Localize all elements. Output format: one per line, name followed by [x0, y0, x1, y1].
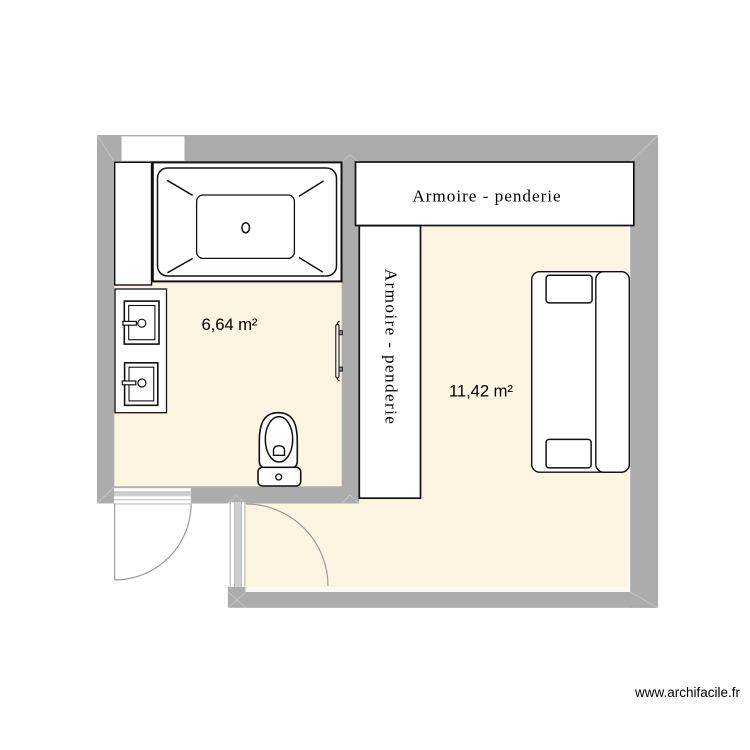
svg-text:6,64 m²: 6,64 m² — [202, 315, 258, 334]
svg-text:Armoire - penderie: Armoire - penderie — [412, 187, 561, 206]
svg-text:www.archifacile.fr: www.archifacile.fr — [634, 685, 741, 700]
svg-text:Armoire - penderie: Armoire - penderie — [382, 269, 401, 426]
svg-text:11,42 m²: 11,42 m² — [449, 382, 513, 401]
